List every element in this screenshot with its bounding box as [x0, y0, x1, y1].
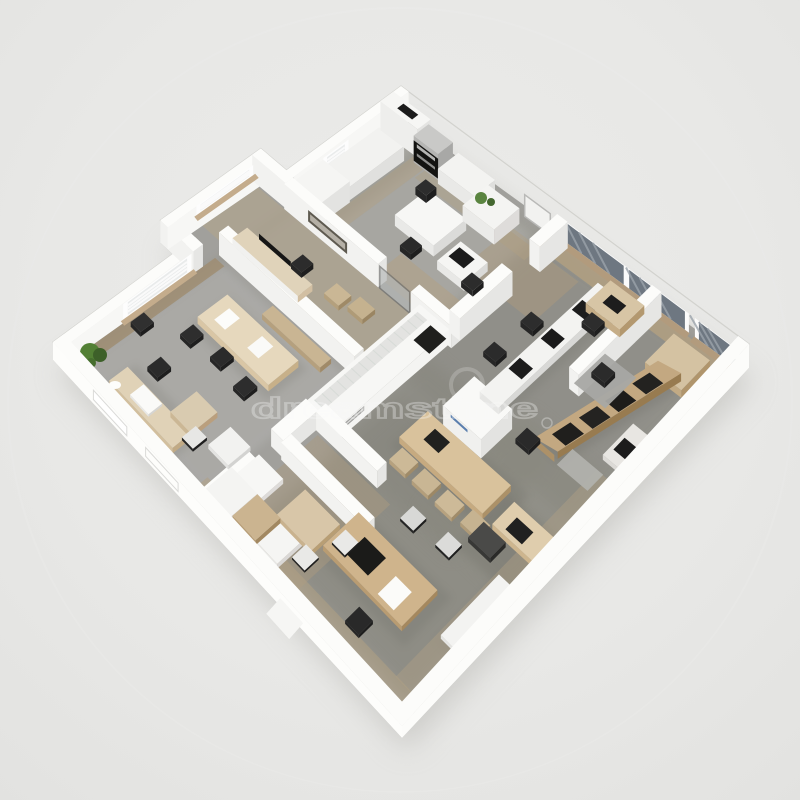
svg-text:dreamstime: dreamstime	[251, 393, 538, 425]
